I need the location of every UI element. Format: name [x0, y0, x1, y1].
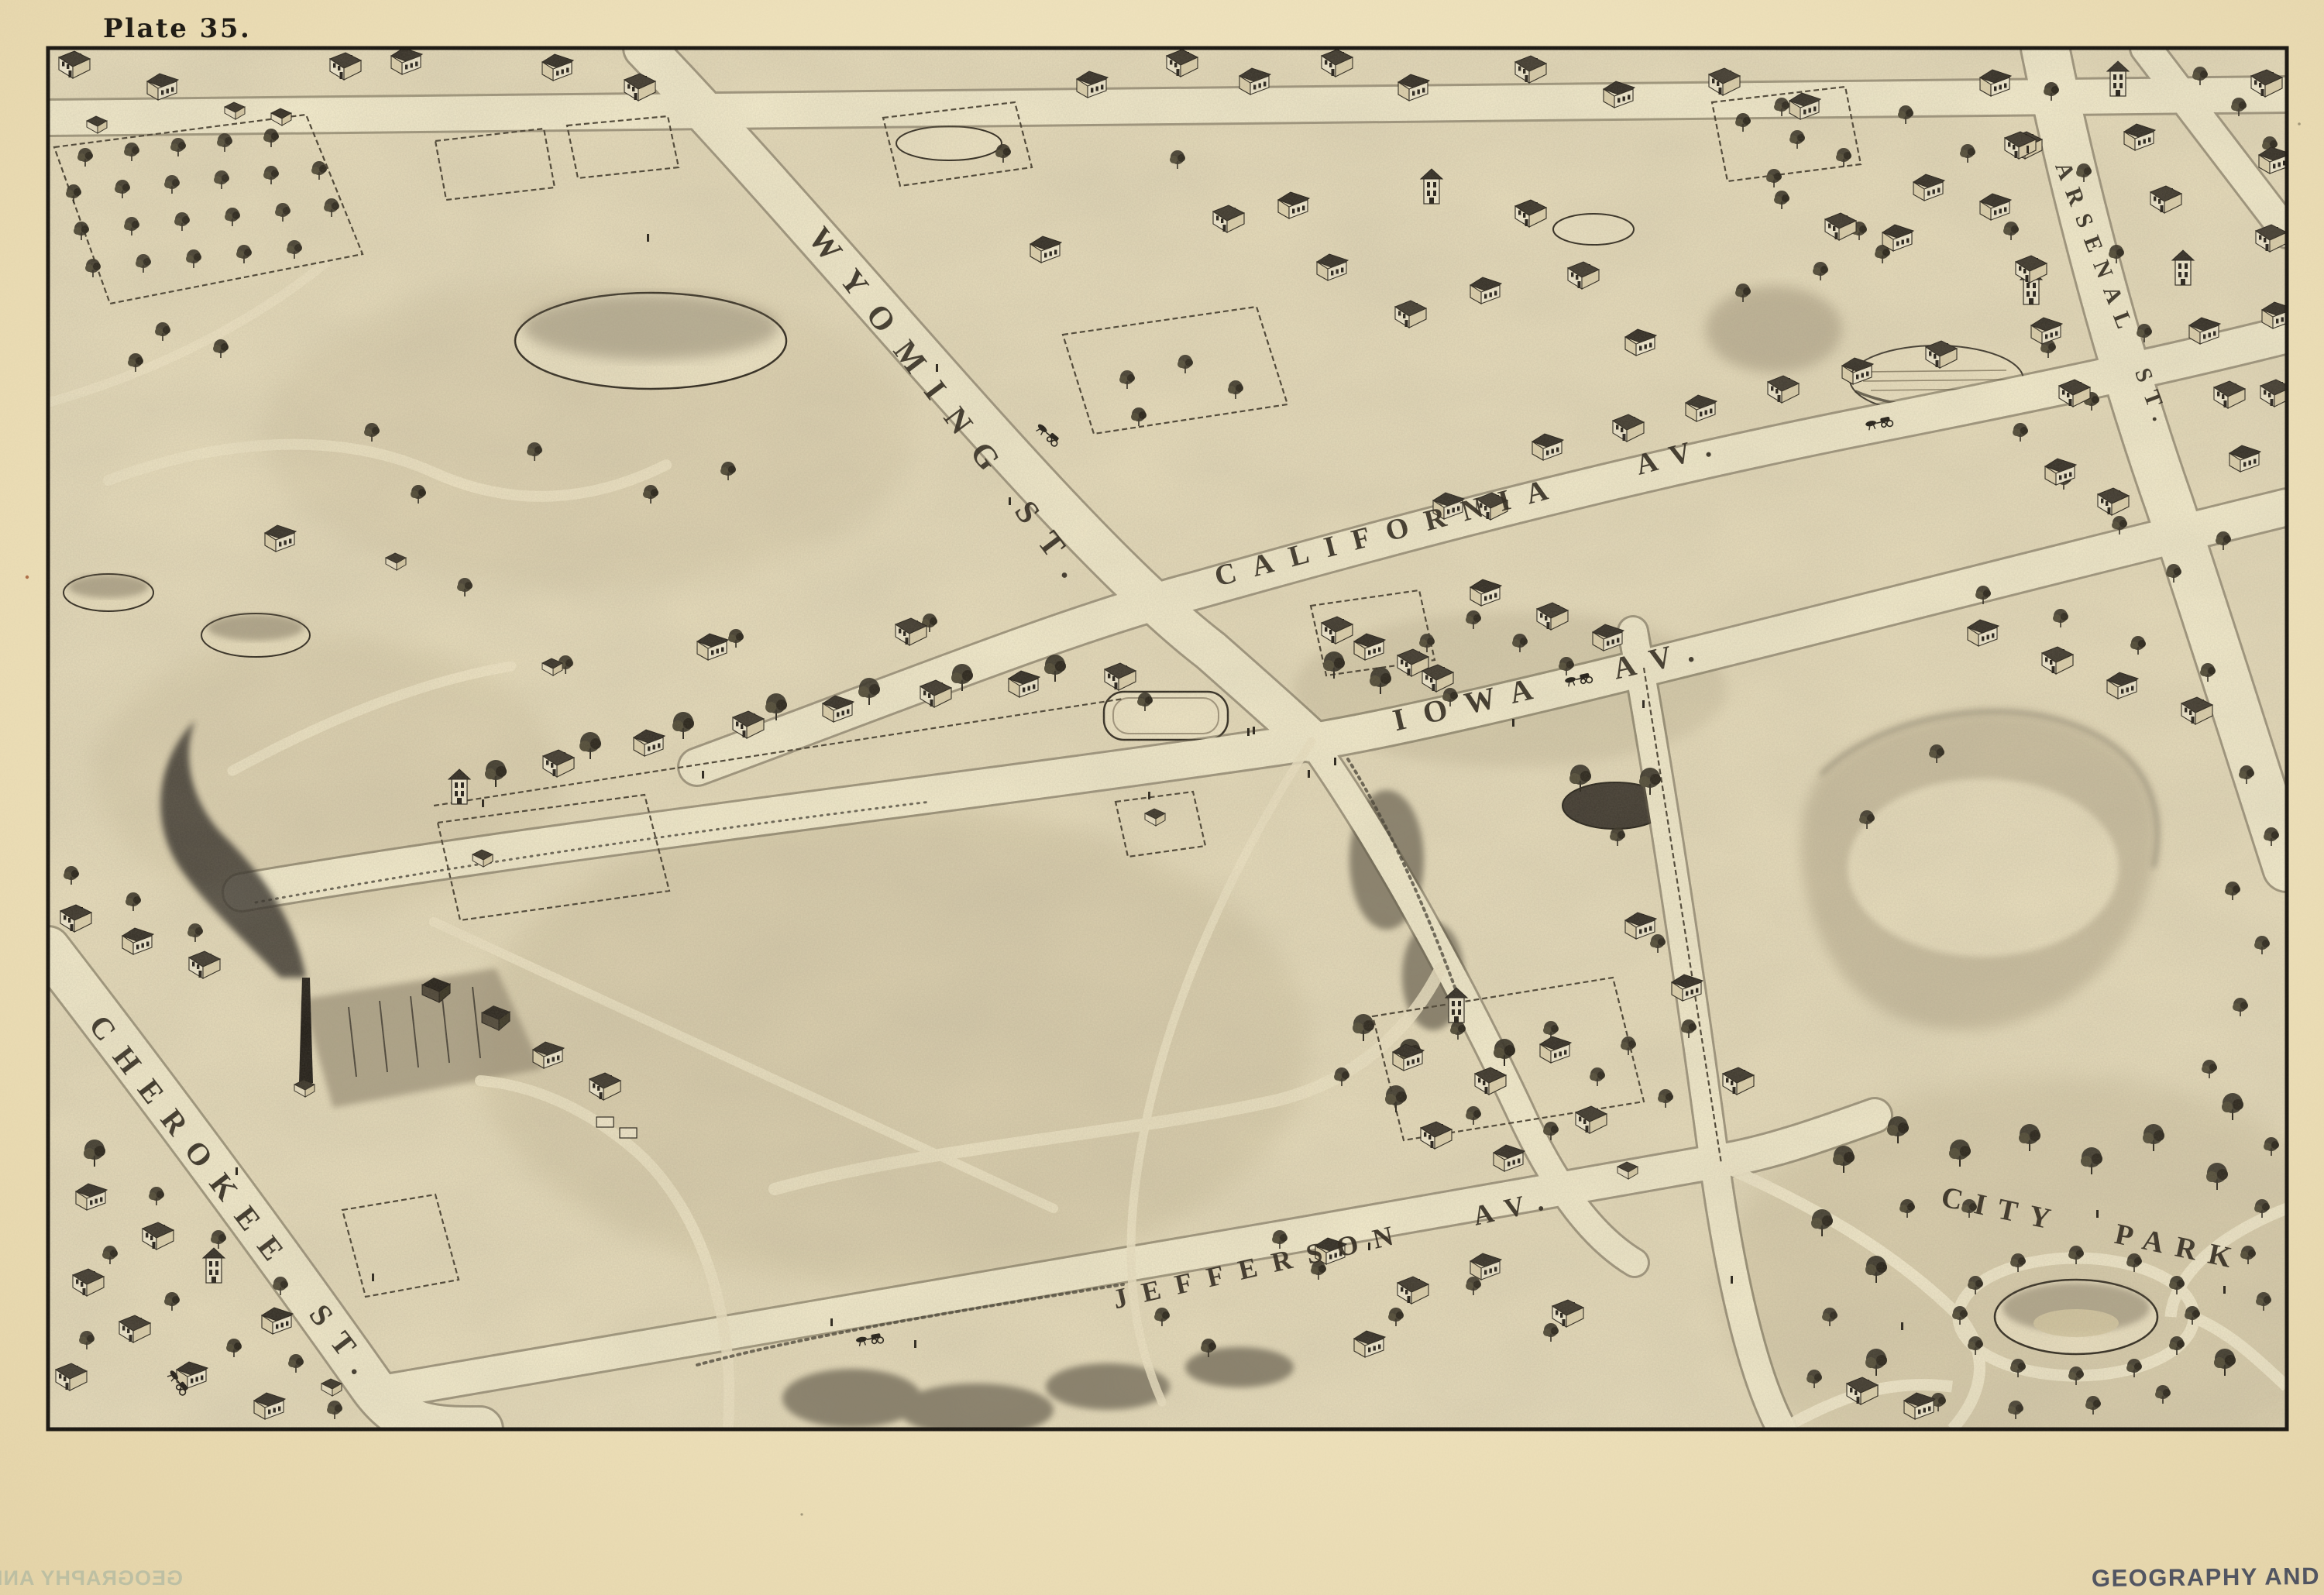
plate-label: Plate 35.	[103, 13, 251, 44]
division-stamp-offset-mirrored: GEOGRAPHY AND MAP DIVISION	[0, 1566, 183, 1590]
division-stamp: GEOGRAPHY AND MAP DIVISION	[2092, 1560, 2324, 1592]
lithograph-map-sheet: WYOMING ST. CALIFORNIA AV. IOWA AV. JEFF…	[0, 0, 2324, 1595]
grain-texture	[50, 50, 2285, 1428]
map-canvas: WYOMING ST. CALIFORNIA AV. IOWA AV. JEFF…	[0, 0, 2324, 1595]
